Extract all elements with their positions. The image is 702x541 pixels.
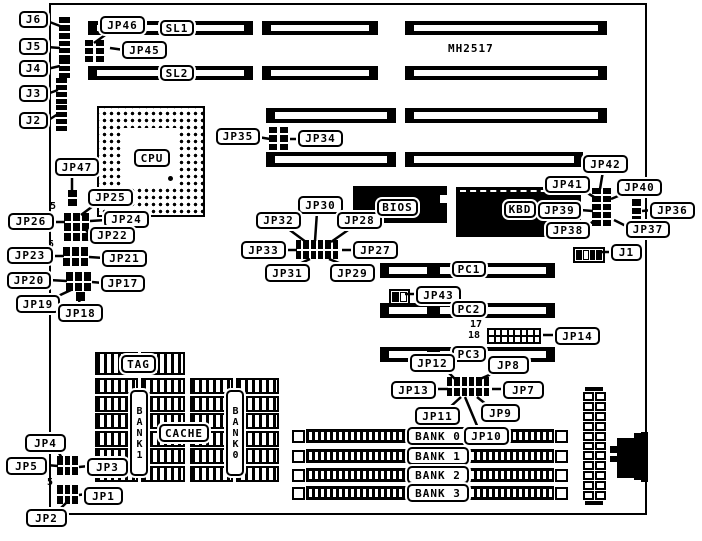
label-jp40: JP40	[617, 179, 662, 196]
label-jp28: JP28	[337, 212, 382, 229]
label-j3: J3	[19, 85, 48, 102]
label-sl2: SL2	[160, 65, 194, 81]
label-jp8: JP8	[488, 356, 529, 374]
label-jp29: JP29	[330, 264, 375, 282]
label-jp41: JP41	[545, 176, 590, 193]
label-jp26: JP26	[8, 213, 54, 230]
label-j2: J2	[19, 112, 48, 129]
label-jp17: JP17	[101, 275, 145, 292]
label-jp12: JP12	[410, 354, 455, 372]
label-jp4: JP4	[25, 434, 66, 452]
label-cache-bank1: BANK1	[130, 390, 148, 476]
label-jp24: JP24	[104, 211, 149, 228]
label-jp18: JP18	[58, 304, 103, 322]
label-j6: J6	[19, 11, 48, 28]
label-jp22: JP22	[90, 227, 135, 244]
label-jp34: JP34	[298, 130, 343, 147]
label-pc2: PC2	[452, 301, 486, 317]
label-bios: BIOS	[377, 199, 418, 216]
label-jp20: JP20	[7, 272, 51, 289]
label-jp31: JP31	[265, 264, 310, 282]
label-bank1: BANK 1	[407, 447, 469, 465]
label-jp11: JP11	[415, 407, 460, 425]
label-jp30: JP30	[298, 196, 343, 214]
label-cpu: CPU	[134, 149, 170, 167]
label-jp19: JP19	[16, 295, 60, 313]
label-jp25: JP25	[88, 189, 133, 206]
label-j1: J1	[611, 244, 642, 261]
label-jp13: JP13	[391, 381, 436, 399]
label-jp3: JP3	[87, 458, 128, 476]
label-jp36: JP36	[650, 202, 695, 219]
label-jp38: JP38	[546, 222, 590, 239]
pin18-marker: 18	[468, 331, 480, 341]
label-jp2: JP2	[26, 509, 67, 527]
label-cache: CACHE	[159, 424, 209, 442]
label-jp32: JP32	[256, 212, 301, 229]
label-cache-bank0: BANK0	[226, 390, 244, 476]
label-jp1: JP1	[84, 487, 123, 505]
label-jp23: JP23	[7, 247, 53, 264]
label-jp33: JP33	[241, 241, 286, 259]
motherboard-diagram: MH2517 5 5 5 17 18 J6 J5 J4 J3 J2 JP46 J…	[0, 0, 702, 541]
board-model-text: MH2517	[448, 43, 494, 54]
label-jp45: JP45	[122, 41, 167, 59]
label-jp7: JP7	[503, 381, 544, 399]
label-pc1: PC1	[452, 261, 486, 277]
label-jp5: JP5	[6, 457, 47, 475]
label-bank2: BANK 2	[407, 466, 469, 484]
label-sl1: SL1	[160, 20, 194, 36]
label-jp21: JP21	[102, 250, 147, 267]
label-jp37: JP37	[626, 221, 670, 238]
label-kbd: KBD	[504, 201, 536, 218]
pin5-marker: 5	[47, 478, 53, 488]
pin17-marker: 17	[470, 320, 482, 330]
label-bank0: BANK 0	[407, 427, 469, 445]
label-jp14: JP14	[555, 327, 600, 345]
label-jp47: JP47	[55, 158, 99, 176]
label-jp42: JP42	[583, 155, 628, 173]
pin5-marker: 5	[50, 202, 56, 212]
label-jp35: JP35	[216, 128, 260, 145]
label-j5: J5	[19, 38, 48, 55]
label-bank3: BANK 3	[407, 484, 469, 502]
label-jp46: JP46	[100, 16, 145, 34]
label-jp39: JP39	[538, 202, 581, 219]
label-jp27: JP27	[353, 241, 398, 259]
label-j4: J4	[19, 60, 48, 77]
label-jp9: JP9	[481, 404, 520, 422]
label-jp10-dup: JP10	[464, 427, 509, 445]
label-pc3: PC3	[452, 346, 486, 362]
label-tag: TAG	[121, 355, 156, 373]
